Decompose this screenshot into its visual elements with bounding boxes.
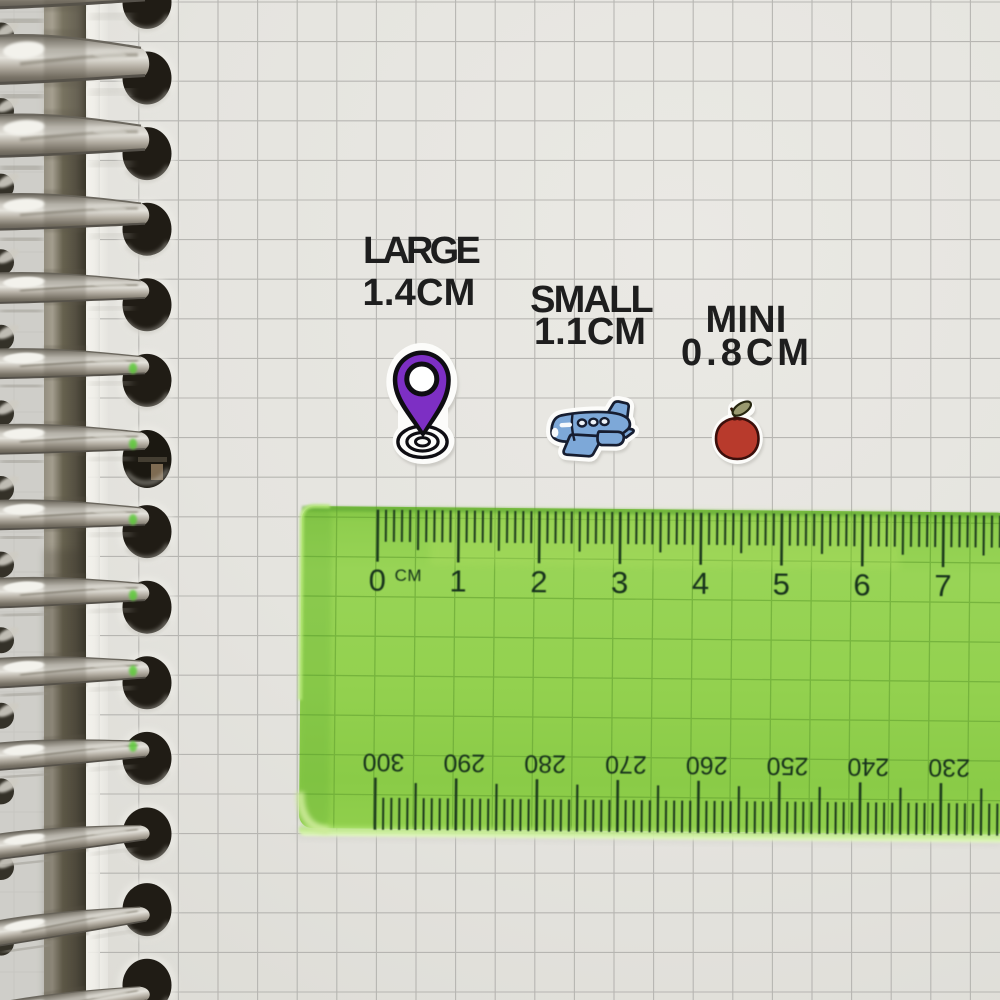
svg-text:0: 0 <box>368 563 386 598</box>
svg-text:0.8CM: 0.8CM <box>681 332 813 374</box>
svg-text:240: 240 <box>847 752 889 780</box>
svg-text:6: 6 <box>853 567 871 602</box>
svg-text:280: 280 <box>524 749 566 777</box>
svg-text:4: 4 <box>692 566 710 601</box>
svg-text:5: 5 <box>772 566 790 601</box>
svg-text:260: 260 <box>686 751 728 779</box>
svg-text:230: 230 <box>928 753 970 781</box>
svg-text:3: 3 <box>611 565 629 600</box>
svg-text:1.4CM: 1.4CM <box>363 272 476 314</box>
svg-text:250: 250 <box>767 751 809 779</box>
svg-text:290: 290 <box>443 748 485 776</box>
svg-text:1.1CM: 1.1CM <box>534 311 646 353</box>
svg-text:2: 2 <box>530 564 548 599</box>
svg-text:LARGE: LARGE <box>363 230 479 272</box>
svg-text:CM: CM <box>395 566 423 585</box>
svg-text:270: 270 <box>605 750 647 778</box>
svg-text:1: 1 <box>449 563 467 598</box>
svg-text:7: 7 <box>934 568 952 603</box>
svg-text:300: 300 <box>363 748 405 776</box>
